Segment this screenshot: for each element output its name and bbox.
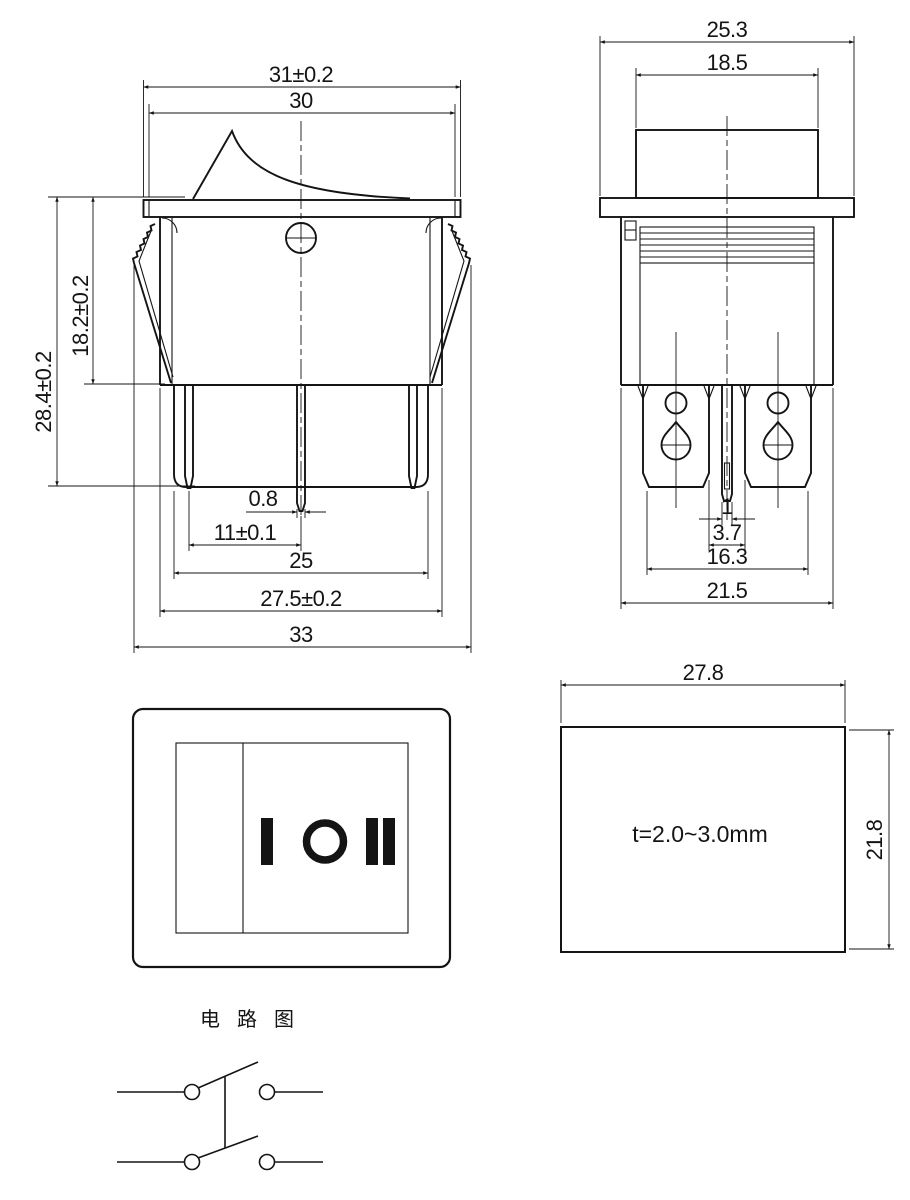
dim-text-terminal-span: 16.3	[707, 544, 748, 569]
position-II-marking-icon	[366, 818, 378, 865]
face-outer-frame	[133, 709, 450, 967]
dim-text-flange-depth: 25.3	[707, 17, 748, 42]
dim-text-base-width: 25	[289, 548, 313, 573]
dim-text-pin-gap: 3.7	[712, 520, 741, 545]
contact-terminal	[260, 1085, 275, 1100]
dim-text-clip-span: 33	[289, 622, 313, 647]
circuit-diagram: 电 路 图	[117, 1008, 323, 1170]
flange-outline	[144, 200, 461, 217]
technical-drawing: 31±0.2 30 28.4±0.2 18.2±0.2 0.8 11±0.1 2…	[0, 0, 910, 1200]
contact-terminal	[260, 1155, 275, 1170]
wing-fillet-arc	[426, 218, 441, 233]
dim-text-cutout-width: 27.8	[683, 660, 724, 685]
dim-text-cutout-height: 21.8	[862, 819, 887, 860]
face-view	[133, 709, 450, 967]
snap-wing-inner	[430, 231, 464, 377]
dim-text-mount-depth: 18.2±0.2	[68, 275, 93, 357]
terminal-pin-left	[185, 385, 193, 488]
position-I-marking-icon	[261, 818, 273, 865]
dim-text-pin-pitch: 11±0.1	[214, 520, 277, 545]
panel-thickness-note: t=2.0~3.0mm	[632, 821, 768, 847]
switch-lever	[198, 1136, 258, 1158]
dim-text-flange-width: 31±0.2	[269, 62, 333, 87]
position-O-marking-icon	[307, 823, 344, 860]
switch-lever	[198, 1062, 258, 1088]
dim-text-pin-width: 1	[721, 494, 733, 519]
dim-text-body-width: 27.5±0.2	[260, 586, 342, 611]
wing-fillet-arc	[162, 218, 177, 233]
circuit-diagram-title: 电 路 图	[200, 1008, 300, 1031]
contact-terminal	[185, 1085, 200, 1100]
dim-text-opening-width: 30	[289, 88, 313, 113]
rocker-profile-curve	[193, 131, 410, 199]
dim-text-pin-thickness: 0.8	[248, 486, 277, 511]
contact-terminal	[185, 1155, 200, 1170]
front-view: 31±0.2 30 28.4±0.2 18.2±0.2 0.8 11±0.1 2…	[31, 62, 471, 653]
drawing-sheet: 31±0.2 30 28.4±0.2 18.2±0.2 0.8 11±0.1 2…	[0, 0, 910, 1200]
panel-cutout-view: t=2.0~3.0mm 27.8 21.8	[561, 660, 894, 952]
side-view: 25.3 18.5 1 3.7 16.3 21.5	[600, 17, 854, 609]
position-II-marking-icon	[383, 818, 395, 865]
dim-text-rocker-depth: 18.5	[707, 50, 748, 75]
terminal-pin-right	[409, 385, 417, 488]
dim-text-total-height: 28.4±0.2	[31, 351, 56, 433]
snap-wing-inner	[139, 231, 173, 377]
dim-text-body-depth: 21.5	[707, 578, 748, 603]
